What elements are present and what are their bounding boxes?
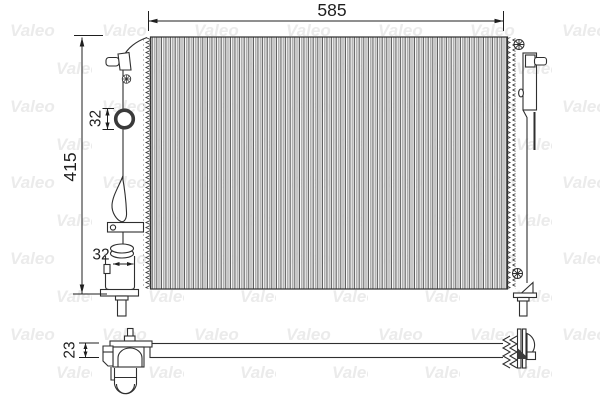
radiator-core: [151, 37, 508, 289]
top-right-stub: [535, 58, 547, 66]
dim-core-height-label: 415: [60, 152, 80, 181]
top-left-stub: [106, 58, 119, 67]
radiator-front-view: [101, 37, 547, 316]
dim-outlet-diameter-label: 32: [92, 247, 109, 264]
left-serrated-edge: [143, 38, 151, 289]
bottom-left-bracket: [101, 290, 139, 297]
radiator-drawing-page: Valeo Valeo: [0, 0, 600, 400]
dim-profile-thickness-label: 23: [62, 341, 79, 358]
right-top-bleed-screw: [514, 40, 524, 50]
left-bleed-screw: [122, 75, 131, 84]
right-serrated-edge: [508, 38, 516, 289]
radiator-technical-drawing: Valeo Valeo: [0, 0, 600, 400]
inlet-port: [116, 110, 134, 128]
dim-inlet-diameter-label: 32: [88, 110, 105, 127]
dim-core-width-label: 585: [317, 0, 346, 20]
profile-core-slab: [150, 344, 505, 358]
right-bottom-bleed-screw: [513, 269, 523, 279]
